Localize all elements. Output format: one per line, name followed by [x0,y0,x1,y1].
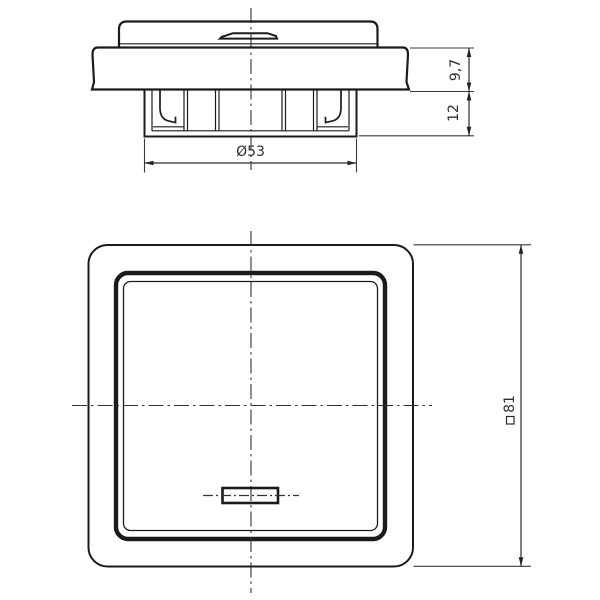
arrowhead-right [348,161,357,166]
arrowhead-left [145,161,154,166]
claw-hook-right [326,91,342,123]
technical-drawing: Ø53 9,7 12 [0,0,600,600]
drawing-canvas: Ø53 9,7 12 [0,0,600,600]
arrowhead-up [467,48,472,57]
claw-hook-left [160,91,176,123]
arrowhead-up [467,92,472,101]
arrowhead-up [519,245,524,254]
dimension-label-plate-size: 81 [502,395,518,413]
arrowhead-down [467,83,472,92]
dimension-label-claw-diameter: Ø53 [236,144,265,160]
dimension-label-claw-depth: 12 [446,104,462,122]
front-view: 81 [72,231,531,593]
dimension-depths: 9,7 12 [359,48,474,136]
dimension-label-frame-depth: 9,7 [448,59,464,81]
square-symbol [507,417,515,425]
arrowhead-down [519,557,524,566]
side-view: Ø53 9,7 12 [92,8,474,173]
indicator-lens-side [220,33,277,38]
arrowhead-down [467,127,472,136]
